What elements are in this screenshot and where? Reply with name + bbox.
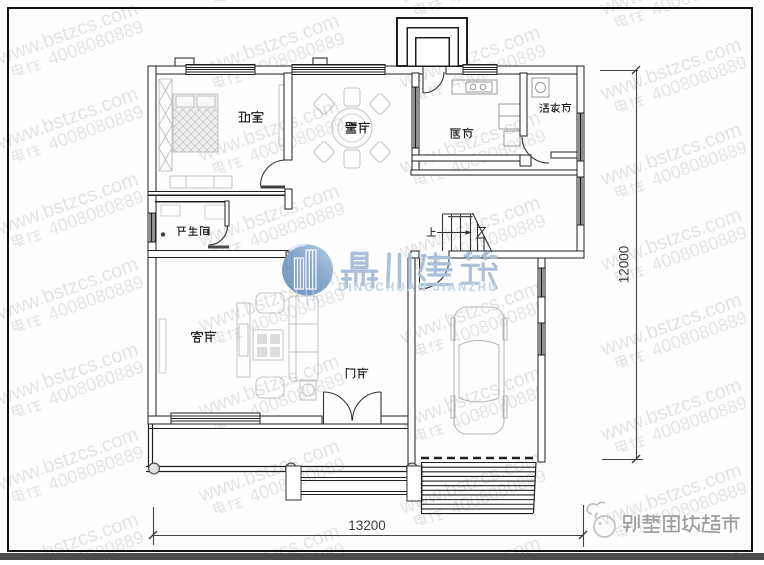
svg-text:13200: 13200 [348, 518, 386, 533]
svg-text:12000: 12000 [617, 246, 632, 284]
svg-text:DINGCHUAN JIANZHU: DINGCHUAN JIANZHU [338, 282, 499, 294]
